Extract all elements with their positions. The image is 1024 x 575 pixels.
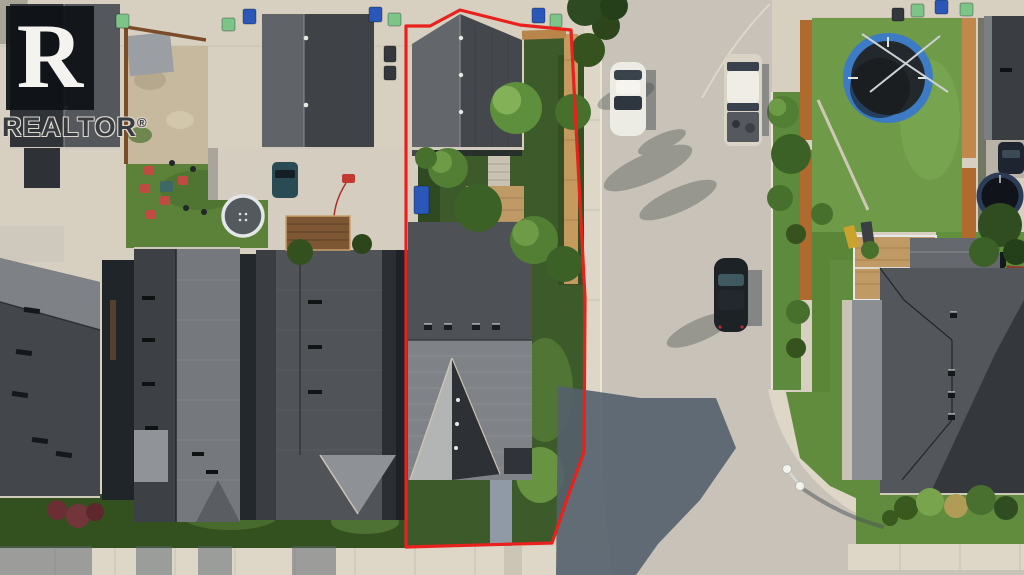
- tree: [287, 239, 313, 265]
- white-sedan: [610, 62, 656, 136]
- green-bin: [222, 18, 235, 31]
- front-walkway-shaded: [490, 480, 512, 546]
- tree: [555, 94, 591, 130]
- blue-bin: [243, 9, 256, 24]
- middle-house-c: [256, 250, 396, 520]
- tree: [454, 184, 502, 232]
- tree: [916, 488, 944, 516]
- tree: [944, 494, 968, 518]
- tree: [861, 241, 879, 259]
- tree: [415, 147, 437, 169]
- garage-steps: [488, 156, 510, 190]
- dark-bin: [384, 46, 396, 62]
- tree: [771, 134, 811, 174]
- teal-parked-car: [272, 162, 298, 198]
- green-bin: [116, 14, 129, 28]
- green-bin: [960, 3, 973, 16]
- dark-bin: [892, 8, 904, 21]
- tree: [969, 237, 999, 267]
- tree: [786, 224, 806, 244]
- gray-trampoline: [223, 196, 263, 236]
- blue-bin: [532, 8, 545, 23]
- patio-table: [160, 181, 173, 192]
- tree-highlight: [493, 86, 522, 115]
- tree: [994, 496, 1018, 520]
- green-bin: [550, 14, 562, 27]
- tree: [786, 300, 810, 324]
- white-pickup-truck: [724, 54, 769, 146]
- dark-bin: [384, 66, 396, 80]
- left-house-a: [0, 258, 100, 497]
- tree: [882, 510, 898, 526]
- tree: [786, 338, 806, 358]
- front-walkway: [504, 546, 522, 575]
- green-bin: [388, 13, 401, 26]
- middle-garage: [262, 14, 374, 148]
- tree: [546, 246, 582, 282]
- tree-highlight: [512, 220, 538, 246]
- aerial-photo: R REALTOR®: [0, 0, 1024, 575]
- tree: [47, 500, 67, 520]
- blue-bin: [369, 7, 382, 22]
- green-bin: [911, 4, 924, 17]
- left-house-b: [134, 248, 240, 522]
- tree: [86, 503, 104, 521]
- tree: [66, 504, 90, 528]
- tree: [966, 485, 996, 515]
- tree: [352, 234, 372, 254]
- tree-highlight: [769, 98, 787, 116]
- tree: [767, 185, 793, 211]
- bottom-right-sidewalk: [848, 544, 1024, 570]
- blue-bin: [414, 186, 429, 214]
- garage-top-left: [10, 4, 120, 148]
- subject-house: [408, 222, 532, 480]
- rear-porch: [504, 448, 532, 474]
- far-right-top-house: [984, 16, 1024, 178]
- blue-bin: [935, 0, 948, 14]
- tree: [811, 203, 833, 225]
